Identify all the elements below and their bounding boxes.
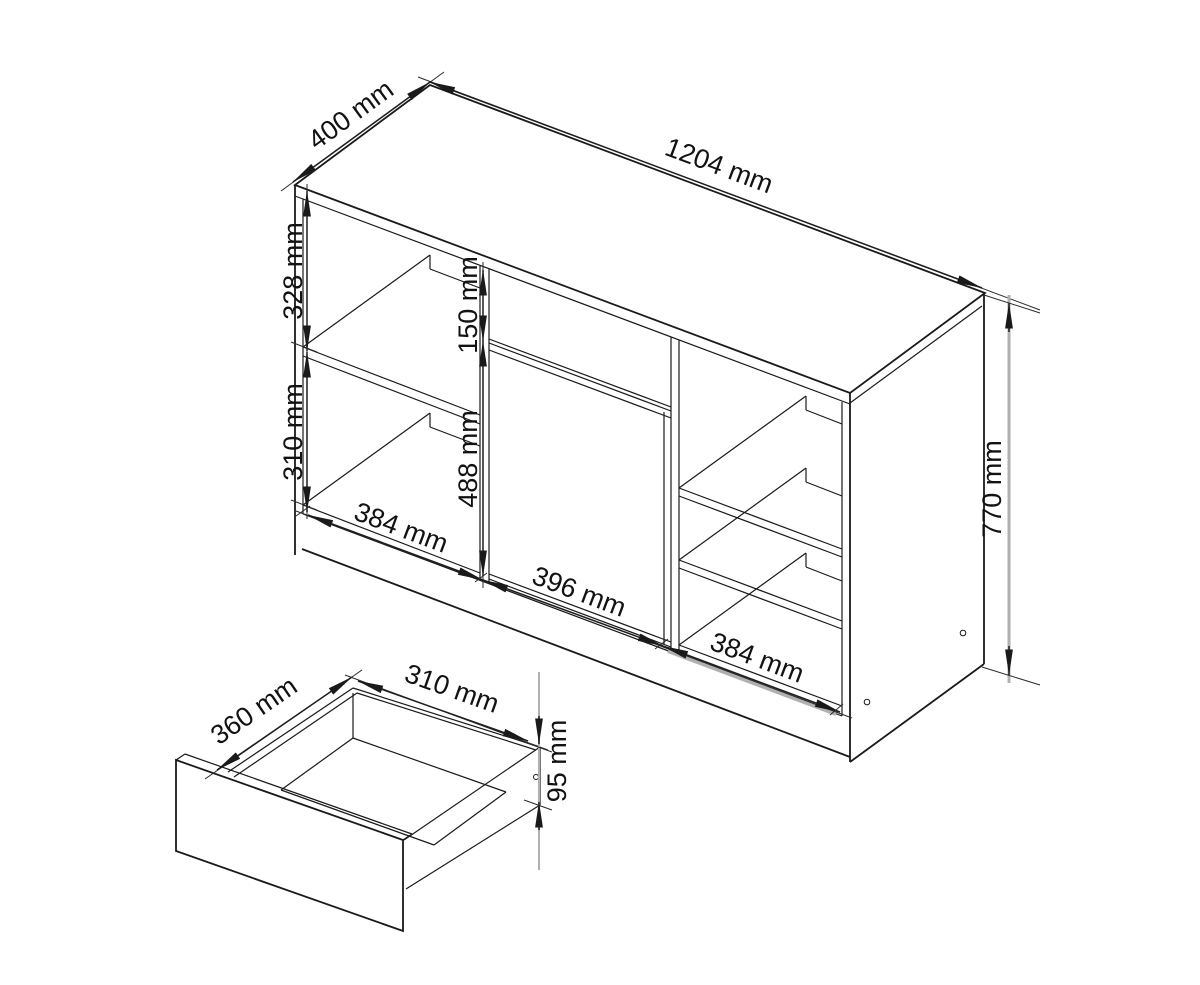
cabinet-right-bottom-edge [850, 664, 984, 762]
dim-label-bottom-middle: 396 mm [528, 560, 630, 622]
furniture-dimension-drawing: 400 mm 1204 mm 328 mm 310 mm 150 mm 488 … [0, 0, 1200, 985]
dim-label-drawer-width: 310 mm [401, 658, 503, 719]
cam-hole [960, 630, 966, 636]
dim-label-side-height: 770 mm [977, 440, 1007, 538]
technical-drawing-page: 400 mm 1204 mm 328 mm 310 mm 150 mm 488 … [0, 0, 1200, 985]
cam-hole [534, 775, 539, 780]
cam-hole [864, 699, 870, 705]
cabinet-top-face [295, 85, 985, 393]
cabinet-dimensions [281, 72, 1040, 718]
drawer-front-panel [176, 760, 403, 931]
dim-label-drawer-depth: 360 mm [205, 671, 302, 751]
cabinet-outline [295, 85, 985, 762]
dim-label-left-lower: 310 mm [278, 383, 308, 481]
drawer-front-bottom-edge [489, 339, 671, 407]
dim-label-drawer-front-height: 150 mm [453, 256, 483, 354]
dim-label-left-upper: 328 mm [278, 222, 308, 320]
dim-label-door-height: 488 mm [453, 410, 483, 508]
dim-label-bottom-right: 384 mm [706, 626, 808, 688]
drawer-right-side-top [404, 747, 540, 840]
cabinet-interior [295, 196, 982, 716]
door-top-edge [489, 350, 671, 418]
dim-label-drawer-height: 95 mm [542, 720, 572, 803]
dimension-labels: 400 mm 1204 mm 328 mm 310 mm 150 mm 488 … [205, 74, 1007, 802]
